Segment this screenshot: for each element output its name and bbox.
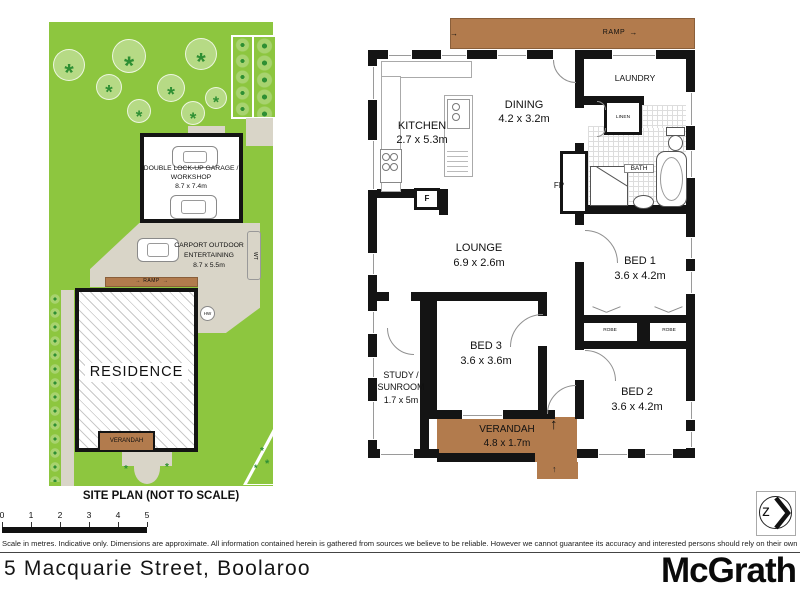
fireplace-label: FP (546, 181, 572, 190)
floor-verandah-steps (537, 462, 578, 479)
fridge: F (414, 188, 440, 210)
window (368, 311, 377, 334)
floor-ramp-label: RAMP (603, 29, 626, 37)
water-tank: WT (247, 231, 261, 280)
scale-tick-label: 0 (0, 511, 7, 521)
window (686, 401, 695, 420)
site-plan-title: SITE PLAN (NOT TO SCALE) (51, 490, 271, 503)
fridge-label: F (425, 194, 430, 203)
site-verandah-label: VERANDAH (110, 438, 143, 445)
scale-tick-label: 3 (84, 511, 94, 521)
tree-icon (205, 87, 227, 109)
room-bed1: BED 1 (599, 255, 681, 268)
bathtub-inner (660, 157, 683, 201)
garage-label: DOUBLE LOCK-UP GARAGE / (141, 165, 241, 173)
tree-icon (127, 99, 151, 123)
bifold-door (668, 306, 682, 313)
garden-bed (231, 35, 254, 119)
path (246, 118, 273, 146)
bifold-door (654, 306, 668, 313)
bifold-door (606, 306, 620, 313)
burner-icon (382, 163, 390, 171)
tree-icon (112, 39, 146, 73)
wall (439, 189, 448, 215)
wall (575, 318, 584, 350)
floor-ramp-label-wrap: RAMP → (560, 26, 680, 40)
carport-label: ENTERTAINING (159, 252, 259, 260)
door-opening (553, 50, 575, 59)
residence-label: RESIDENCE (85, 363, 188, 382)
tree-icon (96, 74, 122, 100)
dishwasher (447, 148, 468, 172)
window (686, 237, 695, 259)
scale-tick-label: 4 (113, 511, 123, 521)
wall (503, 410, 547, 419)
window (388, 50, 412, 59)
garage-label: WORKSHOP (141, 174, 241, 182)
wall (428, 292, 547, 301)
wall (575, 380, 584, 419)
front-walkway (134, 452, 160, 484)
wall (538, 292, 547, 316)
steps-arrow-icon: ↑ (552, 464, 557, 474)
arrow-right-icon: → (629, 28, 637, 37)
wall (575, 262, 584, 318)
window (686, 150, 695, 178)
window (645, 449, 673, 458)
wall (437, 453, 535, 462)
room-bed1-dims: 3.6 x 4.2m (599, 270, 681, 283)
wall (411, 292, 428, 301)
room-bed3: BED 3 (445, 340, 527, 353)
robe-label: ROBE (648, 328, 690, 334)
room-laundry: LAUNDRY (594, 74, 676, 84)
wall (577, 449, 695, 458)
room-lounge-dims: 6.9 x 2.6m (438, 257, 520, 270)
linen-label: LINEN (607, 115, 639, 121)
window (686, 271, 695, 294)
garden-bed (252, 35, 277, 119)
window (368, 66, 377, 100)
arrow-right-icon: → (450, 29, 458, 38)
car-icon (170, 195, 217, 219)
window (497, 50, 527, 59)
scale-tick-label: 2 (55, 511, 65, 521)
wall (575, 50, 584, 108)
compass-arrow-icon (774, 495, 792, 531)
bath-floor (642, 105, 686, 128)
window (686, 92, 695, 126)
room-study-dims: 1.7 x 5m (372, 395, 430, 405)
room-bed2-dims: 3.6 x 4.2m (596, 401, 678, 414)
floorplan-page: DOUBLE LOCK-UP GARAGE / WORKSHOP 8.7 x 7… (0, 0, 800, 600)
room-verandah: VERANDAH (466, 424, 548, 436)
entry-arrow-icon: ↑ (550, 416, 558, 433)
room-bed2: BED 2 (596, 386, 678, 399)
room-verandah-dims: 4.8 x 1.7m (466, 438, 548, 450)
basin (633, 195, 654, 209)
carport-dims: 8.7 x 5.5m (159, 262, 259, 270)
carport-label: CARPORT OUTDOOR (159, 242, 259, 250)
compass-north-letter: z (762, 503, 770, 521)
site-verandah: VERANDAH (98, 431, 155, 452)
burner-icon (390, 153, 398, 161)
property-address: 5 Macquarie Street, Boolaroo (4, 557, 404, 581)
garage-dims: 8.7 x 7.4m (141, 183, 241, 191)
window (441, 50, 467, 59)
room-dining: DINING (483, 99, 565, 112)
left-garden-strip (49, 292, 61, 482)
window (686, 431, 695, 448)
window (598, 449, 628, 458)
room-dining-dims: 4.2 x 3.2m (483, 113, 565, 126)
room-study: SUNROOM (372, 382, 430, 392)
window (612, 50, 656, 59)
water-tank-label: WT (251, 252, 257, 260)
sink-bowl (452, 103, 460, 111)
scale-tick-label: 5 (142, 511, 152, 521)
wall (377, 292, 389, 301)
shower (590, 166, 628, 206)
burner-icon (390, 163, 398, 171)
room-bed3-dims: 3.6 x 3.6m (445, 355, 527, 368)
site-ramp: → RAMP → (105, 277, 198, 287)
window (368, 401, 377, 440)
room-kitchen: KITCHEN (381, 120, 463, 133)
brand-logo: McGrath (600, 551, 796, 591)
window (368, 140, 377, 190)
room-study: STUDY / (372, 370, 430, 380)
scale-tick (147, 522, 148, 527)
toilet-bowl (668, 135, 683, 151)
tree-icon (185, 38, 217, 70)
hot-water: HW (200, 306, 215, 321)
scale-tick-label: 1 (26, 511, 36, 521)
arrow-right-icon: → (135, 279, 140, 285)
site-ramp-label: RAMP (143, 279, 159, 285)
hot-water-label: HW (204, 311, 212, 316)
room-lounge: LOUNGE (438, 242, 520, 255)
tree-icon (157, 74, 185, 102)
bath-label: BATH (624, 164, 654, 173)
tree-icon (181, 101, 205, 125)
scale-bar (2, 527, 147, 533)
window (462, 410, 503, 419)
robe-label: ROBE (586, 328, 634, 334)
room-kitchen-dims: 2.7 x 5.3m (381, 134, 463, 147)
wall (428, 410, 462, 419)
arrow-right-icon: → (163, 279, 168, 285)
window (368, 253, 377, 275)
window (380, 449, 414, 458)
burner-icon (382, 153, 390, 161)
tree-icon (53, 49, 85, 81)
wall (538, 346, 547, 419)
left-path (61, 290, 74, 486)
bifold-door (592, 306, 606, 313)
